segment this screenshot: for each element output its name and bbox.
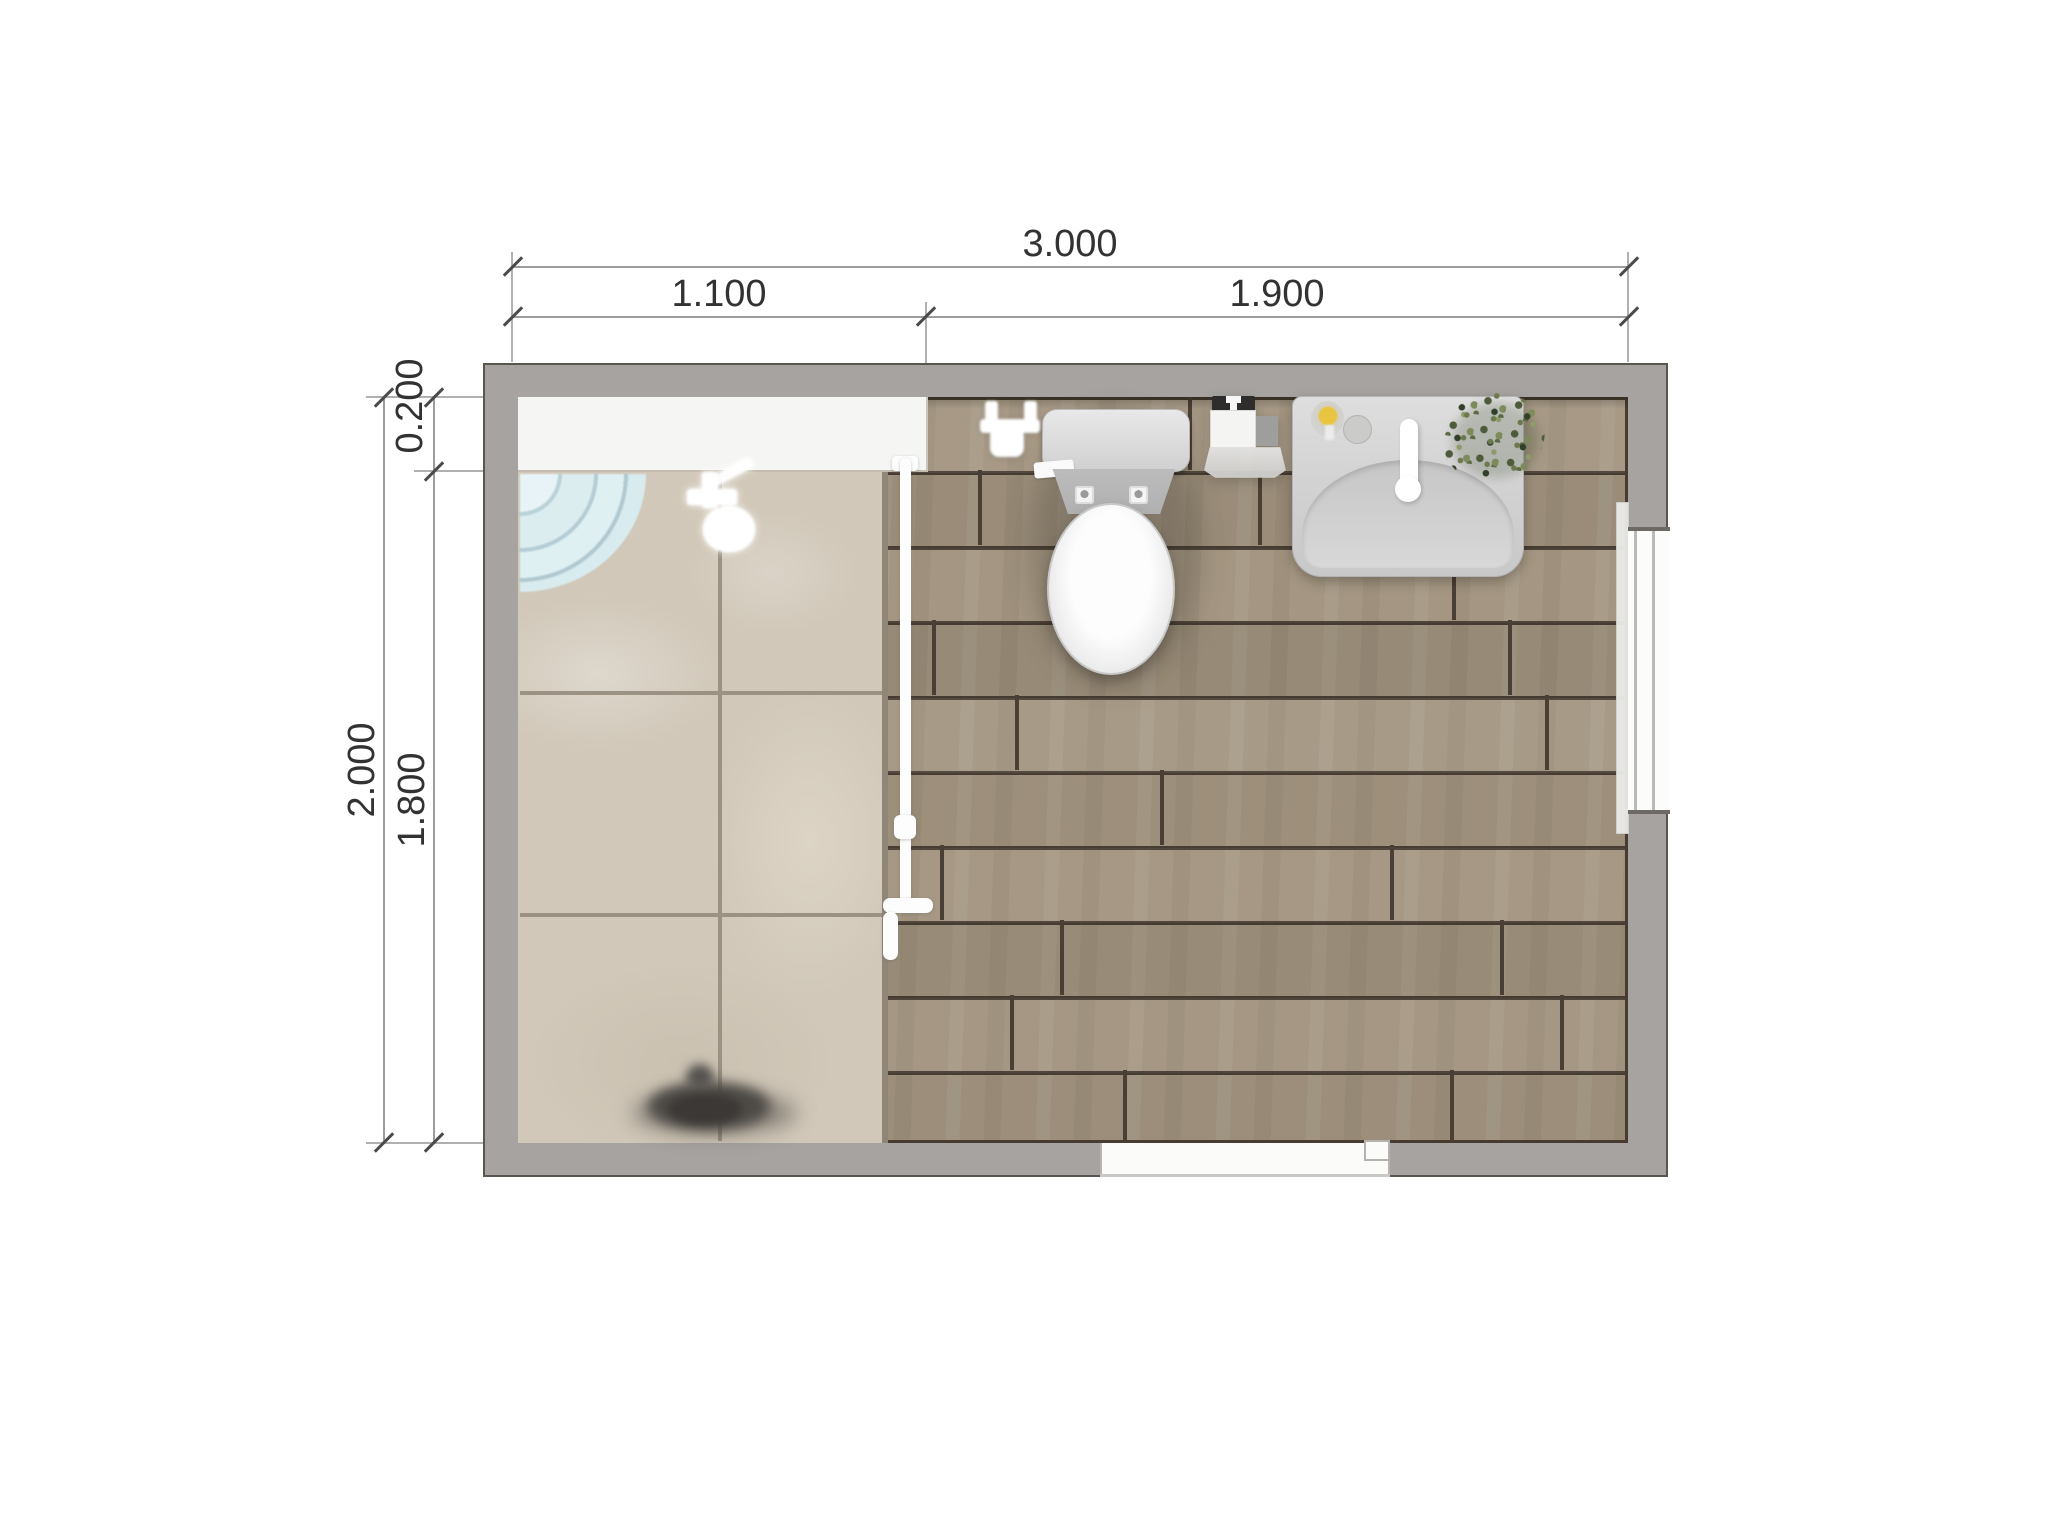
soap-dispenser-pump: [1319, 407, 1337, 425]
plank-joint: [1123, 1070, 1127, 1140]
floor-drain-knob: [686, 1064, 714, 1090]
floor-drain: [620, 1050, 820, 1150]
marble-grout-horizontal: [520, 691, 882, 695]
glass-screen-panel: [900, 458, 911, 908]
trash-bin-lid-white: [1210, 410, 1256, 448]
window-jamb: [1628, 810, 1670, 814]
toilet-paper-holder: [975, 395, 1050, 465]
marble-grout-vertical: [718, 472, 722, 1141]
plank-joint: [932, 620, 936, 695]
plank-joint: [1160, 770, 1164, 845]
shower-ledge: [518, 397, 928, 472]
glass-screen-handle-bar: [883, 898, 933, 913]
dim-label-shower-width: 1.100: [639, 272, 799, 316]
soap-dish: [1343, 415, 1372, 444]
shower-head-bell: [703, 506, 755, 552]
plank-joint: [1560, 995, 1564, 1070]
shower-head-bar: [687, 489, 737, 505]
plank-joint: [1010, 995, 1014, 1070]
plank-joint: [940, 845, 944, 920]
window-frame-line: [1652, 531, 1655, 811]
plank-joint: [1015, 695, 1019, 770]
plank-joint: [1500, 920, 1504, 995]
trash-bin: [1200, 392, 1292, 484]
plank-joint: [1508, 620, 1512, 695]
plank-joint: [1390, 845, 1394, 920]
faucet-spout: [1395, 476, 1421, 502]
trash-bin-lid-gray: [1256, 416, 1278, 446]
dim-label-dry-width: 1.900: [1197, 272, 1357, 316]
door-leaf: [1364, 1140, 1390, 1161]
glass-screen-hinge: [894, 815, 916, 839]
floor-plan-canvas: 3.000 1.100 1.900 2.000 1.800 0.200: [0, 0, 2048, 1536]
glass-screen-handle-leg: [883, 912, 898, 960]
plank-joint: [1060, 920, 1064, 995]
window-jamb: [1628, 527, 1670, 531]
toilet-seat-lid: [1047, 503, 1175, 675]
plank-joint: [978, 470, 982, 545]
plank-joint: [1545, 695, 1549, 770]
dim-label-ledge-depth: 0.200: [388, 326, 432, 486]
window-frame-line: [1634, 531, 1637, 811]
plank-joint: [1450, 1070, 1454, 1140]
floor-drain-core: [668, 1094, 742, 1124]
door-jamb: [1100, 1143, 1102, 1177]
soap-dispenser-spout: [1325, 425, 1334, 440]
marble-grout-horizontal: [520, 913, 882, 917]
tp-holder-roll: [990, 427, 1024, 457]
dim-label-room-depth: 1.800: [390, 720, 434, 880]
dim-line-top-segments: [512, 316, 1628, 318]
dim-label-total-width: 3.000: [990, 222, 1150, 266]
dim-label-total-depth: 2.000: [340, 690, 384, 850]
toilet-seat-hinge: [1129, 486, 1148, 504]
door-opening: [1100, 1143, 1390, 1177]
trash-bin-body: [1204, 447, 1286, 478]
shower-head: [680, 466, 770, 561]
dim-line-top-total: [512, 266, 1628, 268]
toilet-seat-hinge: [1075, 486, 1094, 504]
door-threshold: [1100, 1174, 1390, 1177]
